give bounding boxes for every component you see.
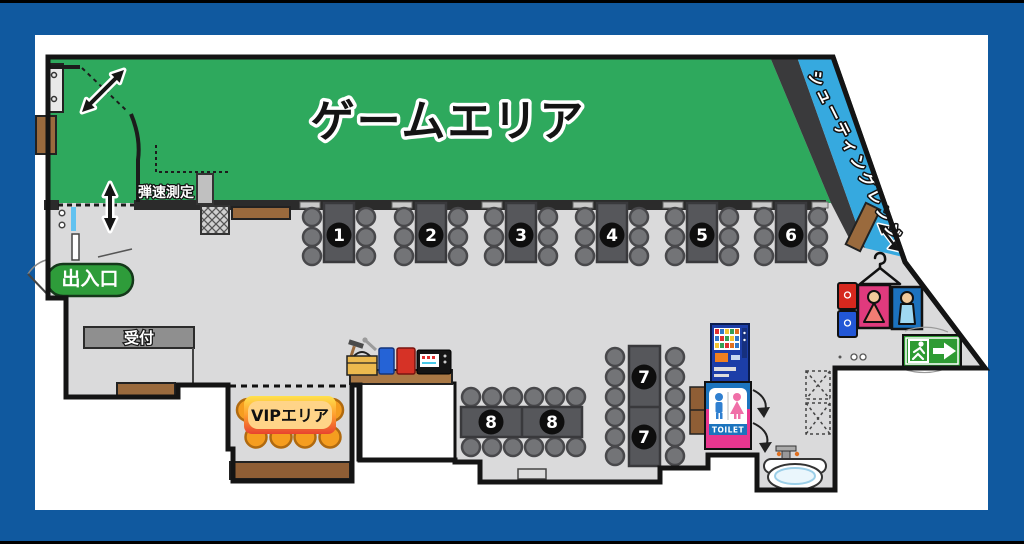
chair	[666, 368, 684, 386]
chair	[666, 348, 684, 366]
chair	[666, 408, 684, 426]
chair	[303, 208, 321, 226]
table-1-label: 1	[333, 226, 345, 246]
entrance-to-game-arrow-icon	[104, 183, 116, 231]
chair	[666, 228, 684, 246]
table-3-label: 3	[515, 226, 527, 246]
table-8-label: 8	[485, 413, 497, 433]
recycle-bins	[838, 283, 857, 337]
chair	[449, 228, 467, 246]
panel	[72, 234, 79, 260]
chair	[576, 247, 594, 265]
male-figure-icon	[899, 304, 915, 324]
chair	[630, 228, 648, 246]
wall-door	[518, 469, 546, 479]
chair	[357, 228, 375, 246]
vending-machine-icon	[711, 324, 749, 382]
chair	[483, 388, 501, 406]
lockers	[690, 387, 706, 434]
chair	[809, 228, 827, 246]
chair	[462, 388, 480, 406]
blue-bin-icon	[379, 348, 394, 374]
chair	[303, 247, 321, 265]
chair	[666, 247, 684, 265]
restroom-female	[858, 285, 890, 328]
chair	[606, 408, 624, 426]
floor-plan-page: 出入口 受付 VIPエリア	[0, 0, 1024, 544]
chair	[606, 447, 624, 465]
chair	[630, 247, 648, 265]
chair	[720, 228, 738, 246]
red-bin-icon	[838, 283, 857, 309]
net-cage	[201, 206, 229, 234]
chair	[395, 228, 413, 246]
chair	[576, 208, 594, 226]
blue-bin-icon	[838, 311, 857, 337]
chair	[576, 228, 594, 246]
table-6-label: 6	[785, 226, 797, 246]
frame-top-edge	[0, 0, 1024, 3]
chair	[449, 208, 467, 226]
chair	[539, 247, 557, 265]
chair	[357, 247, 375, 265]
chronograph-station	[197, 174, 213, 204]
chair	[483, 438, 501, 456]
chair	[485, 247, 503, 265]
chair	[755, 228, 773, 246]
chair	[395, 208, 413, 226]
restroom-male	[892, 287, 922, 329]
toilet-sign: TOILET	[705, 382, 751, 449]
chair	[755, 247, 773, 265]
chair	[303, 228, 321, 246]
chair	[720, 208, 738, 226]
chair	[539, 228, 557, 246]
chair	[720, 247, 738, 265]
entrance-badge-label: 出入口	[61, 267, 118, 290]
chair	[755, 208, 773, 226]
wood-bench	[232, 207, 290, 219]
chair	[567, 438, 585, 456]
chair	[666, 447, 684, 465]
table-4-label: 4	[606, 226, 618, 246]
chair	[546, 438, 564, 456]
reception-label: 受付	[124, 329, 154, 347]
chair	[485, 228, 503, 246]
chair	[539, 208, 557, 226]
microwave-icon	[417, 350, 451, 374]
vip-area-label: VIPエリア	[251, 406, 329, 425]
chair	[606, 348, 624, 366]
chair	[395, 247, 413, 265]
vip-area: VIPエリア	[230, 386, 352, 479]
red-bin-icon	[397, 348, 415, 374]
chair	[606, 368, 624, 386]
blue-marker	[71, 207, 76, 231]
chair	[546, 388, 564, 406]
chair	[525, 438, 543, 456]
floor-plan-svg: 出入口 受付 VIPエリア	[0, 0, 1024, 544]
table-7-label: 7	[638, 368, 650, 388]
chair	[809, 208, 827, 226]
chrono-label: 弾速測定	[138, 184, 194, 201]
chair	[485, 208, 503, 226]
chair	[504, 388, 522, 406]
table-5-label: 5	[696, 226, 708, 246]
staff-room	[358, 383, 455, 460]
chair	[606, 428, 624, 446]
vip-bench	[230, 462, 350, 479]
chair	[525, 388, 543, 406]
chair	[666, 208, 684, 226]
chair	[666, 428, 684, 446]
chair	[567, 388, 585, 406]
chair	[504, 438, 522, 456]
chair	[462, 438, 480, 456]
chair	[666, 388, 684, 406]
chair	[809, 247, 827, 265]
chair	[630, 208, 648, 226]
table-8-label: 8	[546, 413, 558, 433]
table-2-label: 2	[425, 226, 437, 246]
game-area-title: ゲームエリア	[311, 96, 586, 147]
chair	[357, 208, 375, 226]
chair	[606, 388, 624, 406]
chair	[449, 247, 467, 265]
toilet-sign-label: TOILET	[712, 426, 745, 435]
table-7-label: 7	[638, 428, 650, 448]
